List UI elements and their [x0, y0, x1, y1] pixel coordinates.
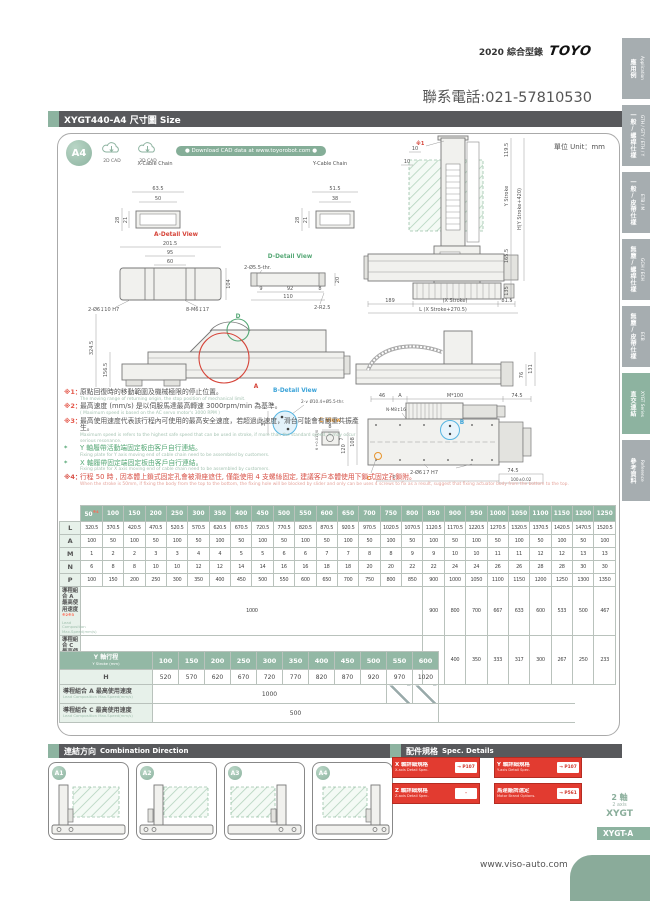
- x-col-header: 50※4: [81, 506, 102, 522]
- note-y-chain: * Y 軸履帶活動端固定板由客戶自行連結。 Fixing plate for Y…: [64, 445, 614, 458]
- dim-label: D-Detail View: [268, 254, 313, 260]
- y-table-header-row: Y 軸行程 Y Stroke (mm) 10015020025030035040…: [60, 652, 576, 670]
- note-zh: Y 軸履帶活動端固定板由客戶自行連結。: [80, 445, 372, 453]
- x-col-header: 1200: [573, 506, 594, 522]
- dim-label: 8: [318, 286, 321, 292]
- dim-label: 50: [155, 196, 161, 202]
- tab-label-en: GCH / ECH: [639, 258, 644, 281]
- x-col-header: 1000: [487, 506, 508, 522]
- note-4: ※4： 行程 50 時 , 因本體上鎖式固定孔會被滑座遮住, 僅能使用 4 支螺…: [64, 474, 614, 487]
- dim-label: 20: [335, 277, 341, 283]
- tab-label-zh: 參考資料: [628, 458, 637, 484]
- page-title: XYGT440-A4 尺寸圖 Size: [64, 113, 181, 126]
- elevation-view: ※1 10 10 119.5 Y Stroke 165.5 135 H(: [364, 136, 524, 313]
- side-view: 324.5 156.5 D A: [89, 314, 350, 390]
- a-detail-view: A-Detail View 201.5 95 60 104 2-Ø6↧10 H7…: [88, 232, 232, 313]
- combination-card-a2[interactable]: A2: [136, 762, 217, 840]
- note-en: ( Maximum speed is based on the AC servo…: [80, 411, 372, 417]
- dim-label: 63.5: [152, 186, 163, 192]
- note-tag: *: [64, 460, 80, 473]
- spec-button-z-axis[interactable]: Z 軸詳細規格 Z-axis Detail Spec. -: [392, 783, 480, 804]
- tab-label-zh: 直交連結: [628, 391, 637, 417]
- green-square-icon: [48, 111, 59, 127]
- dim-label: 135: [504, 286, 510, 296]
- combination-card-a4[interactable]: A4: [312, 762, 393, 840]
- spec-title-zh: 配件規格: [406, 746, 438, 757]
- x-table-row: A100501005010050100501005010050100501005…: [60, 535, 616, 548]
- green-square-icon: [390, 744, 401, 758]
- combination-schematic: [225, 779, 304, 837]
- tab-label-en: Application: [639, 56, 644, 80]
- x-col-header: 150: [124, 506, 145, 522]
- x-col-header: 950: [466, 506, 487, 522]
- y-col-header: 250: [231, 652, 257, 670]
- card-badge: A2: [140, 766, 154, 780]
- note-tag: ※2：: [64, 403, 80, 416]
- y-speed-row: 導程組合 A 最高使用速度Lead Composition Max.Speed(…: [60, 685, 576, 704]
- x-side-view: 76 131: [356, 331, 535, 386]
- y-col-header: 600: [413, 652, 439, 670]
- combination-title-en: Combination Direction: [100, 747, 188, 755]
- y-table-label-en: Y Stroke (mm): [60, 662, 152, 666]
- dim-label: 189: [385, 298, 395, 304]
- note-tag: ※4：: [64, 474, 80, 487]
- dim-label: 51.5: [329, 186, 340, 192]
- tab-label-zh: 無塵/皮帶仕樣: [628, 313, 637, 360]
- x-col-header: 900: [444, 506, 465, 522]
- tab-label-en: GTH / GTY / ETH / Y: [639, 115, 644, 156]
- dim-label: 201.5: [163, 241, 177, 247]
- y-table-corner: Y 軸行程 Y Stroke (mm): [60, 652, 153, 670]
- sidebar-tab-etb-m[interactable]: 一般/皮帶仕樣 ETB / M: [622, 172, 650, 233]
- spec-bar: 配件規格 Spec. Details: [390, 744, 622, 758]
- dim-label: L (X Stroke+270.5): [419, 307, 467, 313]
- y-col-header: 300: [257, 652, 283, 670]
- d-detail-view: D-Detail View 2-Ø5.5-thr. 20 9 92 8 110 …: [244, 254, 341, 311]
- dim-label: X-Cable Chain: [137, 161, 172, 167]
- x-col-header: 200: [145, 506, 166, 522]
- tab-label-zh: 應用例: [628, 59, 637, 79]
- x-col-header: 600: [316, 506, 337, 522]
- x-cable-chain-drawing: X-Cable Chain 63.5 50 28 21: [115, 161, 184, 231]
- card-badge: A1: [52, 766, 66, 780]
- dim-label: 156.5: [103, 363, 109, 377]
- dim-label: 165.5: [504, 249, 510, 263]
- dim-label: 2-Ø6↧10 H7: [88, 306, 119, 313]
- spec-title-en: Spec. Details: [442, 747, 494, 755]
- tab-label-en: ETB / M: [639, 194, 644, 210]
- spec-page-link[interactable]: -: [455, 788, 477, 799]
- note-1: ※1： 原點回復時的移動範圍及機械極限的停止位置。 The moving ran…: [64, 389, 614, 402]
- series-label: XYGT: [592, 809, 647, 821]
- dim-label: 10: [404, 159, 410, 165]
- dim-label: 8-M6↧17: [186, 307, 209, 313]
- combination-title-zh: 連結方向: [64, 746, 96, 757]
- x-col-header: 400: [231, 506, 252, 522]
- dim-label: (X Stroke): [443, 298, 468, 304]
- dim-label: 38: [332, 196, 338, 202]
- dim-label: 92: [287, 286, 293, 292]
- dim-label: Y Stroke: [504, 186, 510, 208]
- combination-bar: 連結方向 Combination Direction: [48, 744, 390, 758]
- catalog-line: 2020 綜合型錄 TOYO: [479, 44, 592, 59]
- x-col-header: 450: [252, 506, 273, 522]
- x-col-header: 350: [209, 506, 230, 522]
- x-table-header-row: X 軸行程 X Stroke (mm) 50※41001502002503003…: [60, 506, 616, 522]
- note-x-chain: * X 軸履帶固定端固定板由客戶自行連結。 Fixing plate for X…: [64, 460, 614, 473]
- note-tag: ※1：: [64, 389, 80, 402]
- note-en: Fixing plate for Y axis moving end of ca…: [80, 453, 372, 459]
- x-col-header: 500: [273, 506, 294, 522]
- y-col-header: 450: [335, 652, 361, 670]
- y-col-header: 500: [361, 652, 387, 670]
- tab-label-en: Reference: [639, 460, 644, 482]
- y-col-header: 400: [309, 652, 335, 670]
- spec-label-en: X-axis Detail Spec.: [395, 769, 455, 773]
- xygt-a-tab[interactable]: XYGT-A: [597, 827, 650, 840]
- card-badge: A4: [316, 766, 330, 780]
- green-square-icon: [48, 744, 59, 758]
- dim-label: 324.5: [89, 341, 95, 355]
- y-col-header: 350: [283, 652, 309, 670]
- dim-label: 28: [115, 217, 121, 223]
- dim-label: 2-Ø5.5-thr.: [244, 264, 271, 271]
- x-col-header: 650: [337, 506, 358, 522]
- sidebar: 應用例 Application 一般/螺桿仕樣 GTH / GTY / ETH …: [622, 38, 650, 501]
- spec-button-y-axis[interactable]: Y 軸詳細規格 Y-axis Detail Spec. → P107: [494, 757, 582, 778]
- title-bar: XYGT440-A4 尺寸圖 Size: [48, 111, 622, 127]
- y-table-row: H5205706206707207708208709209701020: [60, 670, 576, 685]
- note-zh: 原點回復時的移動範圍及機械極限的停止位置。: [80, 389, 372, 397]
- sidebar-tab-reference[interactable]: 參考資料 Reference: [622, 440, 650, 501]
- phone-number: 聯系電話:021-57810530: [422, 86, 592, 107]
- spec-label-en: Y-axis Detail Spec.: [497, 769, 557, 773]
- spec-buttons: X 軸詳細規格 X-axis Detail Spec. → P107 Y 軸詳細…: [392, 757, 582, 804]
- x-col-header: 700: [359, 506, 380, 522]
- dim-label: 60: [167, 259, 173, 265]
- dim-label: 110: [283, 294, 293, 300]
- corner-decoration: [570, 855, 650, 901]
- dim-label: 81.5: [501, 298, 512, 304]
- spec-page-link[interactable]: → P561: [557, 788, 579, 799]
- y-col-header: 100: [153, 652, 179, 670]
- spec-page-link[interactable]: → P107: [455, 762, 477, 773]
- dim-label: H(Y Stroke+420): [517, 188, 523, 230]
- y-col-header: 150: [179, 652, 205, 670]
- note-zh: 行程 50 時 , 因本體上鎖式固定孔會被滑座遮住, 僅能使用 4 支螺絲固定,…: [80, 474, 614, 482]
- note-3: ※3： 最高使用速度代表該行程內可使用的最高安全速度，若超過此速度，滑台可能會有…: [64, 418, 614, 445]
- y-stroke-table: Y 軸行程 Y Stroke (mm) 10015020025030035040…: [59, 651, 575, 723]
- dim-label: A-Detail View: [154, 232, 199, 238]
- card-badge: A3: [228, 766, 242, 780]
- axis-block: 2 軸 2 axis XYGT: [592, 794, 647, 820]
- website-url[interactable]: www.viso-auto.com: [480, 860, 568, 870]
- note-en: Maximum speed is refers to the highest s…: [80, 433, 372, 444]
- x-table-row: P100150200250300350400450500550600650700…: [60, 574, 616, 587]
- dim-label: 28: [295, 217, 301, 223]
- sidebar-tab-gch-ech[interactable]: 無塵/螺桿仕樣 GCH / ECH: [622, 239, 650, 300]
- tab-label-zh: 一般/皮帶仕樣: [628, 179, 637, 226]
- spec-page-link[interactable]: → P107: [557, 762, 579, 773]
- combination-schematic: [313, 779, 392, 837]
- x-col-header: 1250: [594, 506, 616, 522]
- x-col-header: 1100: [530, 506, 551, 522]
- dim-label: 104: [226, 279, 232, 289]
- x-table-row: M122334455667788991010111112121313: [60, 548, 616, 561]
- combination-cards: A1 A2 A3: [48, 762, 393, 840]
- x-col-header: 300: [188, 506, 209, 522]
- dim-label: Y-Cable Chain: [312, 161, 347, 167]
- dim-label: 21: [303, 217, 309, 223]
- spec-label-en: Motor Brand Options.: [497, 795, 557, 799]
- x-col-header: 550: [295, 506, 316, 522]
- spec-button-x-axis[interactable]: X 軸詳細規格 X-axis Detail Spec. → P107: [392, 757, 480, 778]
- tab-label-zh: 無塵/螺桿仕樣: [628, 246, 637, 293]
- x-col-header: 750: [380, 506, 401, 522]
- notes: ※1： 原點回復時的移動範圍及機械極限的停止位置。 The moving ran…: [64, 389, 614, 488]
- dim-label: 131: [528, 364, 534, 374]
- d-mark: D: [236, 314, 241, 320]
- x-table-row: N688101012121414161618182020222224242626…: [60, 561, 616, 574]
- x-col-header: 800: [402, 506, 423, 522]
- sidebar-tab-gth-gty-eth-y[interactable]: 一般/螺桿仕樣 GTH / GTY / ETH / Y: [622, 105, 650, 166]
- x-col-header: 1050: [508, 506, 529, 522]
- dim-label: 76: [519, 372, 525, 378]
- note-zh: 最高使用速度代表該行程內可使用的最高安全速度，若超過此速度，滑台可能會有嚴重共振…: [80, 418, 372, 434]
- dim-label: 9: [259, 286, 262, 292]
- x-table-row: L320.5370.5420.5470.5520.5570.5620.5670.…: [60, 522, 616, 535]
- y-speed-row: 導程組合 C 最高使用速度Lead Composition Max.Speed(…: [60, 704, 576, 723]
- note-2: ※2： 最高速度 (mm/s) 是以伺服馬達最高轉速 3000rpm/min 為…: [64, 403, 614, 416]
- tab-label-en: ECB: [639, 332, 644, 341]
- axis-count-zh: 2 軸: [592, 794, 647, 803]
- sidebar-tab-application[interactable]: 應用例 Application: [622, 38, 650, 99]
- combination-schematic: [49, 779, 128, 837]
- x-col-header: 100: [102, 506, 123, 522]
- dim-label: 119.5: [504, 143, 510, 157]
- y-cable-chain-drawing: Y-Cable Chain 51.5 38 28 21: [295, 161, 358, 231]
- x-col-header: 1150: [551, 506, 572, 522]
- dim-label: 10: [412, 146, 418, 152]
- sidebar-tab-ecb[interactable]: 無塵/皮帶仕樣 ECB: [622, 306, 650, 367]
- x-speed-row: 導程組合 A最高使用速度 ※2※3Lead CompositionMax.Spe…: [60, 587, 616, 636]
- spec-button-motor-brand[interactable]: 馬達廠牌選定 Motor Brand Options. → P561: [494, 783, 582, 804]
- x-col-header: 250: [166, 506, 187, 522]
- note-zh: 最高速度 (mm/s) 是以伺服馬達最高轉速 3000rpm/min 為基準。: [80, 403, 372, 411]
- combination-schematic: [137, 779, 216, 837]
- sidebar-tab-xygt-series[interactable]: 直交連結 XYGT Series: [622, 373, 650, 434]
- dim-label: 2-R2.5: [314, 305, 330, 311]
- tab-label-zh: 一般/螺桿仕樣: [628, 112, 637, 159]
- dimension-frame: A4 2D CAD 3D CAD ● Download CAD data at …: [57, 133, 620, 736]
- combination-card-a1[interactable]: A1: [48, 762, 129, 840]
- y-col-header: 550: [387, 652, 413, 670]
- page: 2020 綜合型錄 TOYO 聯系電話:021-57810530 應用例 App…: [0, 0, 650, 901]
- combination-card-a3[interactable]: A3: [224, 762, 305, 840]
- dim-label: 21: [123, 217, 129, 223]
- toyo-logo: TOYO: [548, 44, 593, 59]
- x-col-header: 850: [423, 506, 444, 522]
- y-col-header: 200: [205, 652, 231, 670]
- catalog-title: 2020 綜合型錄: [479, 45, 543, 58]
- note-tag: ※3：: [64, 418, 80, 445]
- y-table-body: H5205706206707207708208709209701020導程組合 …: [60, 670, 576, 723]
- spec-label-en: Z-axis Detail Spec.: [395, 795, 455, 799]
- dim-label: 95: [167, 250, 173, 256]
- note-tag: *: [64, 445, 80, 458]
- note-en: When the stroke is 50mm, if fixing the b…: [80, 482, 614, 488]
- tab-label-en: XYGT Series: [639, 391, 644, 417]
